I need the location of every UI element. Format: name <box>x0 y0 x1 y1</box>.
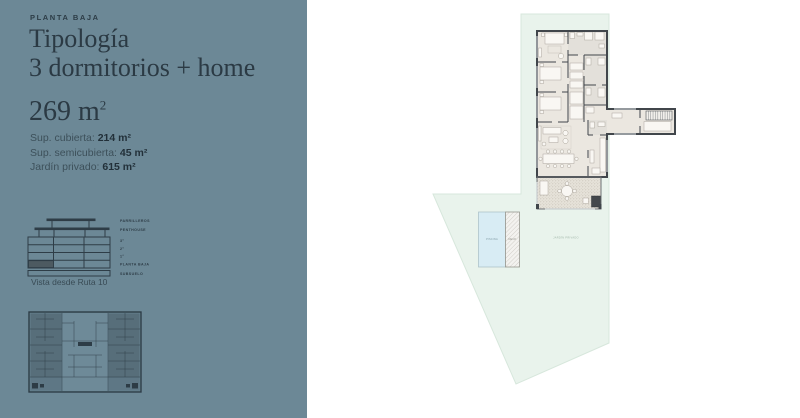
highlighted-unit-cell <box>29 261 54 268</box>
spec-row-jardin: Jardín privado: 615 m² <box>30 160 147 175</box>
unit-right <box>109 314 140 378</box>
elevation-level-label: PENTHOUSE <box>120 228 146 232</box>
elevation-level-label: 3° <box>120 239 124 243</box>
eyebrow-label: PLANTA BAJA <box>30 13 100 22</box>
info-panel: PLANTA BAJA Tipología 3 dormitorios + ho… <box>0 0 307 418</box>
deck-label: DECK <box>508 237 516 241</box>
keyplan-diagram <box>28 311 142 393</box>
typology-title-line1: Tipología <box>29 24 255 53</box>
spec-row-cubierta: Sup. cubierta: 214 m² <box>30 131 147 146</box>
unit-left <box>31 314 62 378</box>
brochure-page: PISCINA DECK JARDÍN PRIVADO <box>0 0 800 418</box>
elevation-caption: Vista desde Ruta 10 <box>31 277 107 287</box>
stairs-icon <box>646 111 672 120</box>
garden-label: JARDÍN PRIVADO <box>553 236 579 240</box>
elevation-level-label: 2° <box>120 247 124 251</box>
area-specs: Sup. cubierta: 214 m² Sup. semicubierta:… <box>30 131 147 175</box>
elevation-level-label: PLANTA BAJA <box>120 262 149 266</box>
spec-row-semicubierta: Sup. semicubierta: 45 m² <box>30 146 147 161</box>
pool-label: PISCINA <box>486 237 498 241</box>
elevation-level-label: PARRILLEROS <box>120 219 150 223</box>
elevation-diagram: PARRILLEROS PENTHOUSE 3° 2° 1° PLANTA BA… <box>26 216 161 280</box>
typology-title-line2: 3 dormitorios + home <box>29 53 255 82</box>
elevation-level-label: SUBSUELO <box>120 272 143 276</box>
elevation-level-label: 1° <box>120 255 124 259</box>
typology-title: Tipología 3 dormitorios + home <box>29 24 255 82</box>
total-area: 269 m2 <box>29 96 106 128</box>
